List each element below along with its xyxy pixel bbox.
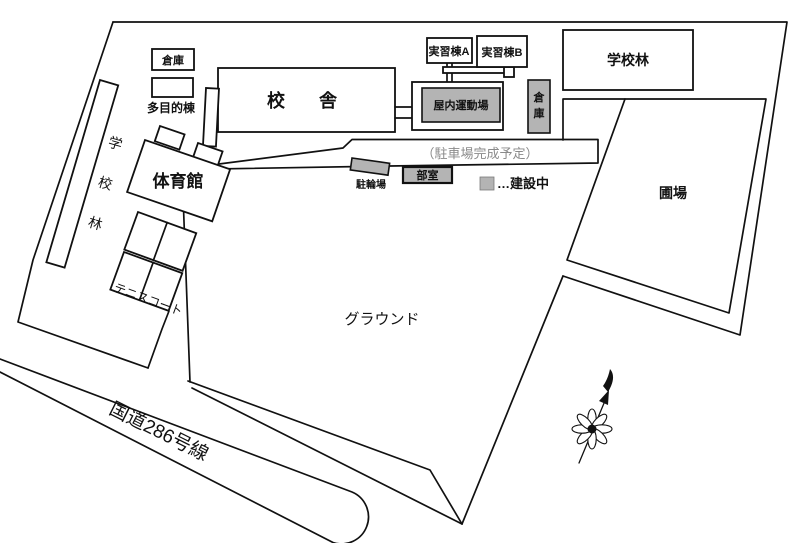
storage-right-building [528,80,550,133]
compass-petals-icon [572,409,612,449]
multipurpose-building [152,78,193,97]
compass-center-icon [588,425,597,434]
parking-planned-label: （駐車場完成予定） [421,146,538,161]
indoor-gym-label: 屋内運動場 [434,98,489,112]
multipurpose-label: 多目的棟 [147,100,196,115]
legend-under-construction-label: …建設中 [497,176,549,191]
school-forest-right-label: 学校林 [607,52,649,68]
school-building-label: 校 舎 [267,90,345,111]
gymnasium-label: 体育館 [153,171,204,191]
field-label: 圃場 [659,185,687,201]
storage-right-label-1: 倉 [533,90,546,104]
training-b-label: 実習棟B [482,45,523,59]
corridor-training-b-stub [504,67,514,77]
west-annex-rect [203,88,219,147]
bicycle-parking-label: 駐輪場 [356,178,386,191]
school-campus-map: 倉庫 多目的棟 校 舎 実習棟A 実習棟B 屋内運動場 倉 庫 学校林 体育館 … [0,0,800,543]
storage-left-label: 倉庫 [161,53,184,67]
ground-label: グラウンド [344,311,419,328]
corridor-horizontal [443,67,510,73]
storage-right-label-2: 庫 [534,106,545,120]
club-room-label: 部室 [417,168,439,182]
legend-under-construction-swatch [480,177,494,190]
training-a-label: 実習棟A [429,44,470,58]
campus-map-canvas: 倉庫 多目的棟 校 舎 実習棟A 実習棟B 屋内運動場 倉 庫 学校林 体育館 … [0,0,800,543]
west-annex-corridor [203,88,219,147]
